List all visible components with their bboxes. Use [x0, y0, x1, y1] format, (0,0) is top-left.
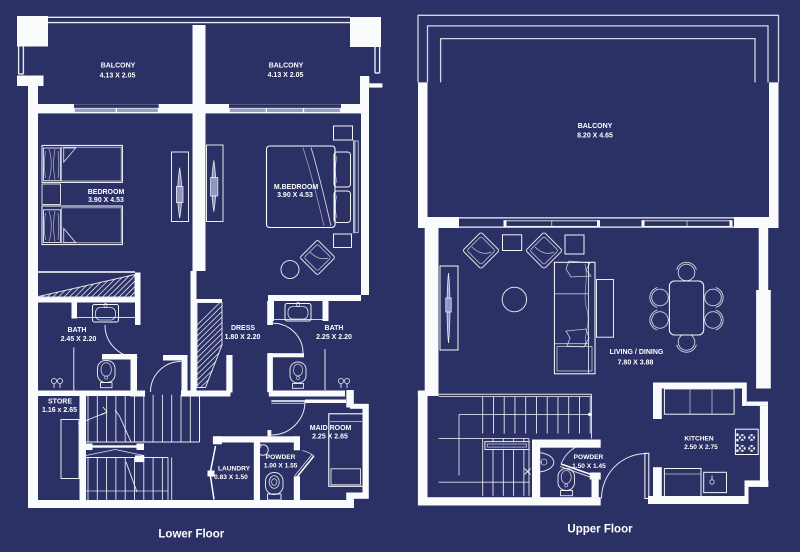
- svg-text:2.25 X 2.65: 2.25 X 2.65: [312, 434, 348, 441]
- svg-text:1.50 X 1.45: 1.50 X 1.45: [572, 463, 606, 470]
- svg-text:STORE: STORE: [48, 399, 72, 406]
- svg-text:POWDER: POWDER: [266, 454, 296, 461]
- svg-text:7.80 X 3.88: 7.80 X 3.88: [618, 360, 654, 367]
- svg-text:MAID ROOM: MAID ROOM: [310, 425, 352, 432]
- svg-text:LAUNDRY: LAUNDRY: [218, 466, 251, 473]
- svg-text:BALCONY: BALCONY: [101, 63, 136, 70]
- svg-text:BEDROOM: BEDROOM: [88, 189, 125, 196]
- svg-text:2.25 X 2.20: 2.25 X 2.20: [316, 334, 352, 341]
- svg-text:BATH: BATH: [68, 327, 87, 334]
- svg-text:4.13 X 2.05: 4.13 X 2.05: [268, 72, 304, 79]
- svg-text:8.20 X 4.65: 8.20 X 4.65: [577, 133, 613, 140]
- svg-text:BALCONY: BALCONY: [269, 63, 304, 70]
- svg-text:2.45 X 2.20: 2.45 X 2.20: [61, 336, 97, 343]
- svg-text:1.00 X 1.55: 1.00 X 1.55: [264, 463, 298, 470]
- svg-text:DRESS: DRESS: [231, 325, 255, 332]
- svg-text:3.90 X 4.53: 3.90 X 4.53: [88, 197, 124, 204]
- svg-text:1.16 x 2.65: 1.16 x 2.65: [42, 407, 77, 414]
- svg-text:3.90 X 4.53: 3.90 X 4.53: [277, 192, 313, 199]
- svg-text:KITCHEN: KITCHEN: [684, 436, 714, 443]
- svg-text:BATH: BATH: [325, 325, 344, 332]
- svg-text:1.80 X 2.20: 1.80 X 2.20: [225, 334, 261, 341]
- svg-text:4.13 X 2.05: 4.13 X 2.05: [100, 73, 136, 80]
- svg-text:BALCONY: BALCONY: [578, 123, 613, 130]
- svg-text:0.83 X 1.50: 0.83 X 1.50: [214, 474, 248, 481]
- svg-text:2.50 X 2.75: 2.50 X 2.75: [684, 444, 718, 451]
- svg-text:Upper Floor: Upper Floor: [567, 524, 633, 536]
- svg-text:LIVING / DINING: LIVING / DINING: [610, 349, 664, 356]
- svg-text:M.BEDROOM: M.BEDROOM: [274, 184, 319, 191]
- svg-text:POWDER: POWDER: [574, 454, 604, 461]
- svg-text:Lower Floor: Lower Floor: [158, 529, 224, 541]
